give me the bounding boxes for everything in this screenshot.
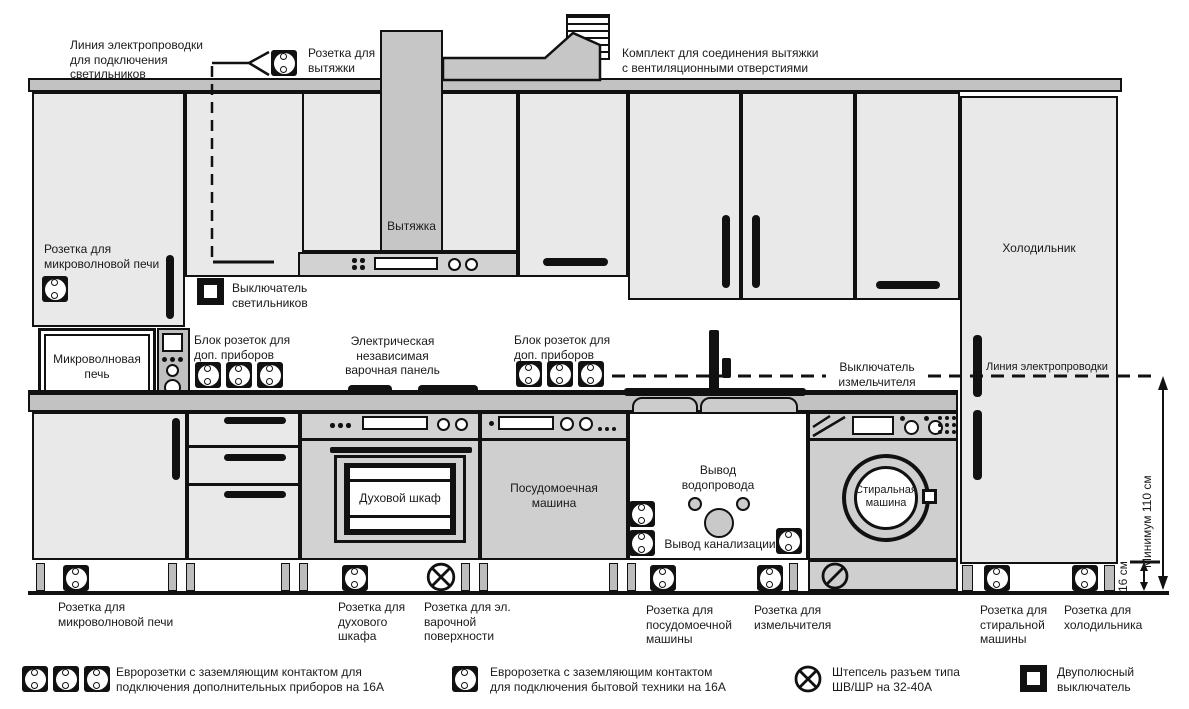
socket-block-left-label: Блок розеток для доп. приборов <box>194 333 309 362</box>
legend-euro-socket-label: Евророзетка с заземляющим контактом для … <box>490 665 735 694</box>
legend-triple-socket-icon <box>53 666 79 692</box>
socket-label-grinder: Розетка для измельчителя <box>754 603 850 632</box>
socket-label-washer: Розетка для стиральной машины <box>980 603 1062 647</box>
socket-label-dishwasher: Розетка для посудомоечной машины <box>646 603 754 647</box>
wiring-line-label: Линия электропроводки <box>986 361 1111 374</box>
socket-label-oven: Розетка для духового шкафа <box>338 600 422 644</box>
plinth-height-dimension-label: 16 см <box>1116 554 1132 592</box>
min-height-dimension-label: Минимум 110 см <box>1140 408 1158 568</box>
hob-label: Электрическая независимая варочная панел… <box>330 334 455 378</box>
min-height-dimension-arrow <box>1158 376 1168 590</box>
legend-triple-socket-label: Евророзетки с заземляющим контактом для … <box>116 665 416 694</box>
socket-block-right-label: Блок розеток для доп. приборов <box>514 333 632 362</box>
lighting-line-label: Линия электропроводки для подключения св… <box>70 38 220 82</box>
legend-plug-connector-label: Штепсель разъем типа ШВ/ШР на 32-40А <box>832 665 982 694</box>
vent-kit-label: Комплект для соединения вытяжки с вентил… <box>622 46 827 75</box>
legend-plug-connector-icon <box>794 665 822 693</box>
legend-triple-socket-icon <box>84 666 110 692</box>
grinder-switch-label: Выключатель измельчителя <box>830 360 924 389</box>
socket-label-hob: Розетка для эл. варочной поверхности <box>424 600 518 644</box>
lighting-pointer <box>212 52 269 75</box>
legend-euro-socket-icon <box>452 666 478 692</box>
microwave-socket-label: Розетка для микроволновой печи <box>44 242 160 271</box>
legend-triple-socket-icon <box>22 666 48 692</box>
socket-label-fridge: Розетка для холодильника <box>1064 603 1164 632</box>
hood-socket-label: Розетка для вытяжки <box>308 46 420 75</box>
legend-bipolar-switch-label: Двуполюсный выключатель <box>1057 665 1167 694</box>
legend-bipolar-switch-icon <box>1020 665 1047 692</box>
socket-label-microwave: Розетка для микроволновой печи <box>58 600 208 629</box>
kitchen-wiring-diagram: Вытяжка Микроволновая печь Мойка <box>0 0 1189 709</box>
lights-switch-label: Выключатель светильников <box>232 281 347 310</box>
